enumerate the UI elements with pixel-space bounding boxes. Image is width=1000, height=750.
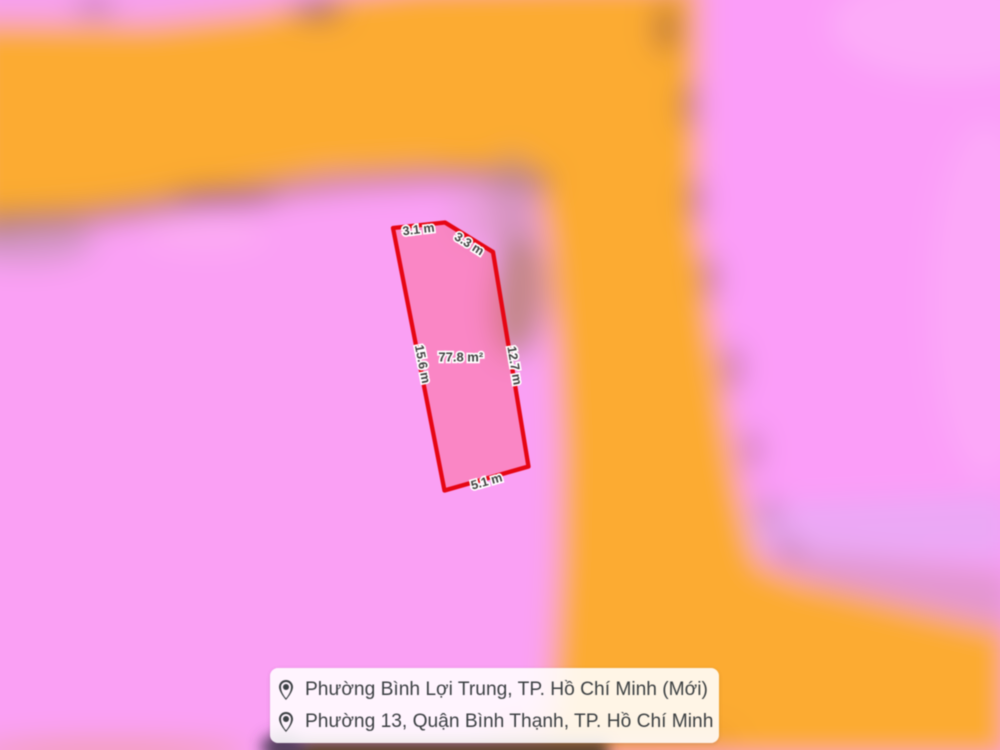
svg-text:77.8 m²: 77.8 m²: [438, 349, 483, 364]
